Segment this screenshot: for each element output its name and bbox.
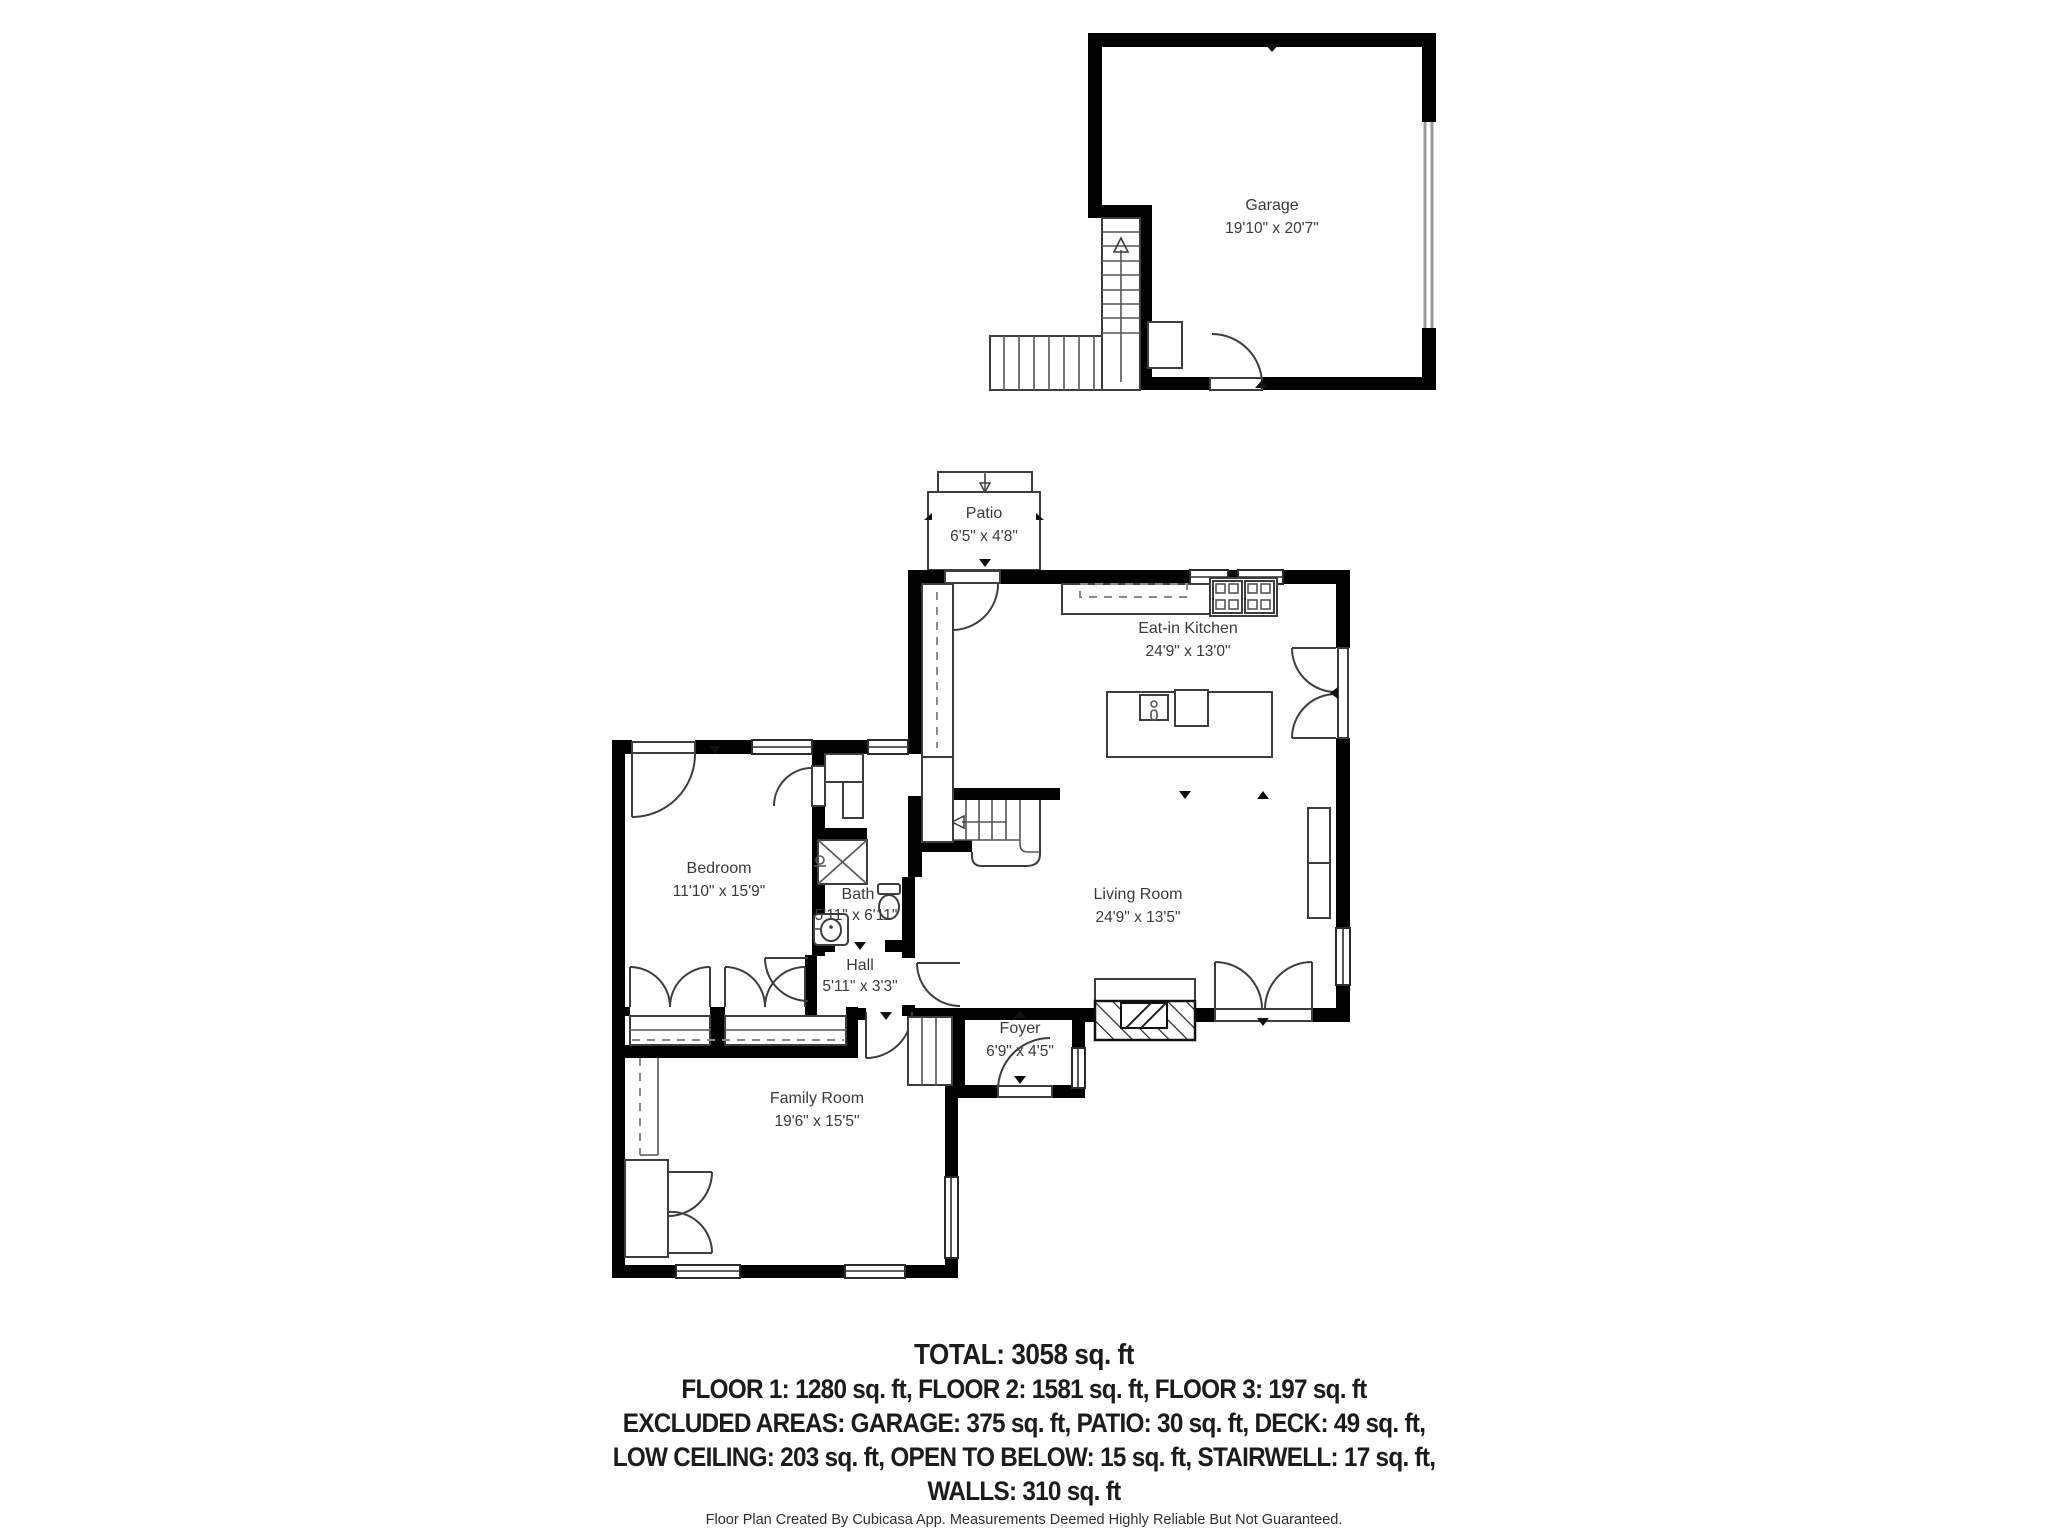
living-label: Living Room — [1094, 886, 1183, 903]
bedroom-closet-doors — [630, 967, 805, 1007]
refrigerator — [922, 757, 953, 842]
area-summary: TOTAL: 3058 sq. ft FLOOR 1: 1280 sq. ft,… — [0, 1338, 2048, 1508]
living-french-doors — [1215, 962, 1312, 1021]
bedroom-window — [752, 740, 812, 754]
family-label: Family Room — [770, 1090, 864, 1107]
living-bookshelf — [1308, 808, 1330, 918]
kitchen-dims: 24'9" x 13'0" — [1145, 643, 1230, 660]
disclaimer: Floor Plan Created By Cubicasa App. Meas… — [0, 1512, 2048, 1528]
excluded-areas-2: LOW CEILING: 203 sq. ft, OPEN TO BELOW: … — [102, 1440, 1945, 1474]
family-room-door — [866, 1012, 912, 1058]
garage-dims: 19'10" x 20'7" — [1225, 220, 1319, 237]
island-cooktop — [1175, 690, 1208, 726]
garage-entry-door — [1210, 334, 1262, 390]
main-stairs — [953, 800, 1040, 866]
floorplan-drawing: Garage 19'10" x 20'7" Patio 6'5" x 4'8" … — [0, 0, 2048, 1536]
floor-areas: FLOOR 1: 1280 sq. ft, FLOOR 2: 1581 sq. … — [102, 1372, 1945, 1406]
garage-door-icon — [1425, 122, 1432, 328]
fireplace-icon — [1095, 979, 1195, 1040]
hall-east-door — [917, 963, 960, 1006]
foyer-window — [1072, 1048, 1085, 1088]
foyer-label: Foyer — [1000, 1020, 1042, 1037]
shower-icon — [814, 840, 867, 884]
bedroom-dims: 11'10" x 15'9" — [673, 883, 765, 900]
patio-label: Patio — [966, 505, 1003, 522]
floorplan-page: Garage 19'10" x 20'7" Patio 6'5" x 4'8" … — [0, 0, 2048, 1536]
bath-label: Bath — [842, 886, 875, 903]
walls-area: WALLS: 310 sq. ft — [102, 1474, 1945, 1508]
family-window-side — [945, 1177, 958, 1258]
living-dims: 24'9" x 13'5" — [1095, 909, 1180, 926]
doors — [630, 571, 1348, 1253]
closet-window — [868, 740, 908, 754]
garage-stairs — [990, 218, 1182, 390]
foyer-steps — [908, 1017, 952, 1085]
patio-dims: 6'5" x 4'8" — [950, 528, 1018, 545]
family-lowceiling-closet — [625, 1058, 668, 1257]
garage-label: Garage — [1245, 197, 1298, 214]
bedroom-label: Bedroom — [687, 860, 752, 877]
kitchen-french-doors — [1292, 648, 1348, 738]
stove-icon — [1210, 578, 1277, 616]
family-window-1 — [676, 1265, 740, 1278]
hall-west-door — [765, 958, 808, 1001]
bath-dims: 5'11" x 6'11" — [815, 907, 898, 924]
family-dims: 19'6" x 15'5" — [774, 1113, 859, 1130]
bedroom-closet-strip — [630, 1016, 846, 1045]
excluded-areas-1: EXCLUDED AREAS: GARAGE: 375 sq. ft, PATI… — [102, 1406, 1945, 1440]
windows — [676, 570, 1350, 1278]
main-floor-walls — [612, 570, 1350, 1278]
family-closet-doors — [668, 1172, 712, 1253]
hall-label: Hall — [846, 957, 874, 974]
hall-dims: 5'11" x 3'3" — [822, 978, 897, 995]
bath-closet-shelves — [825, 754, 863, 818]
bedroom-deck-door — [632, 742, 695, 817]
foyer-dims: 6'9" x 4'5" — [986, 1043, 1054, 1060]
family-window-2 — [845, 1265, 905, 1278]
total-area: TOTAL: 3058 sq. ft — [102, 1338, 1945, 1372]
living-window — [1336, 928, 1350, 985]
kitchen-island — [1107, 690, 1272, 757]
kitchen-label: Eat-in Kitchen — [1138, 620, 1238, 637]
bedroom-entry-door — [774, 766, 825, 806]
